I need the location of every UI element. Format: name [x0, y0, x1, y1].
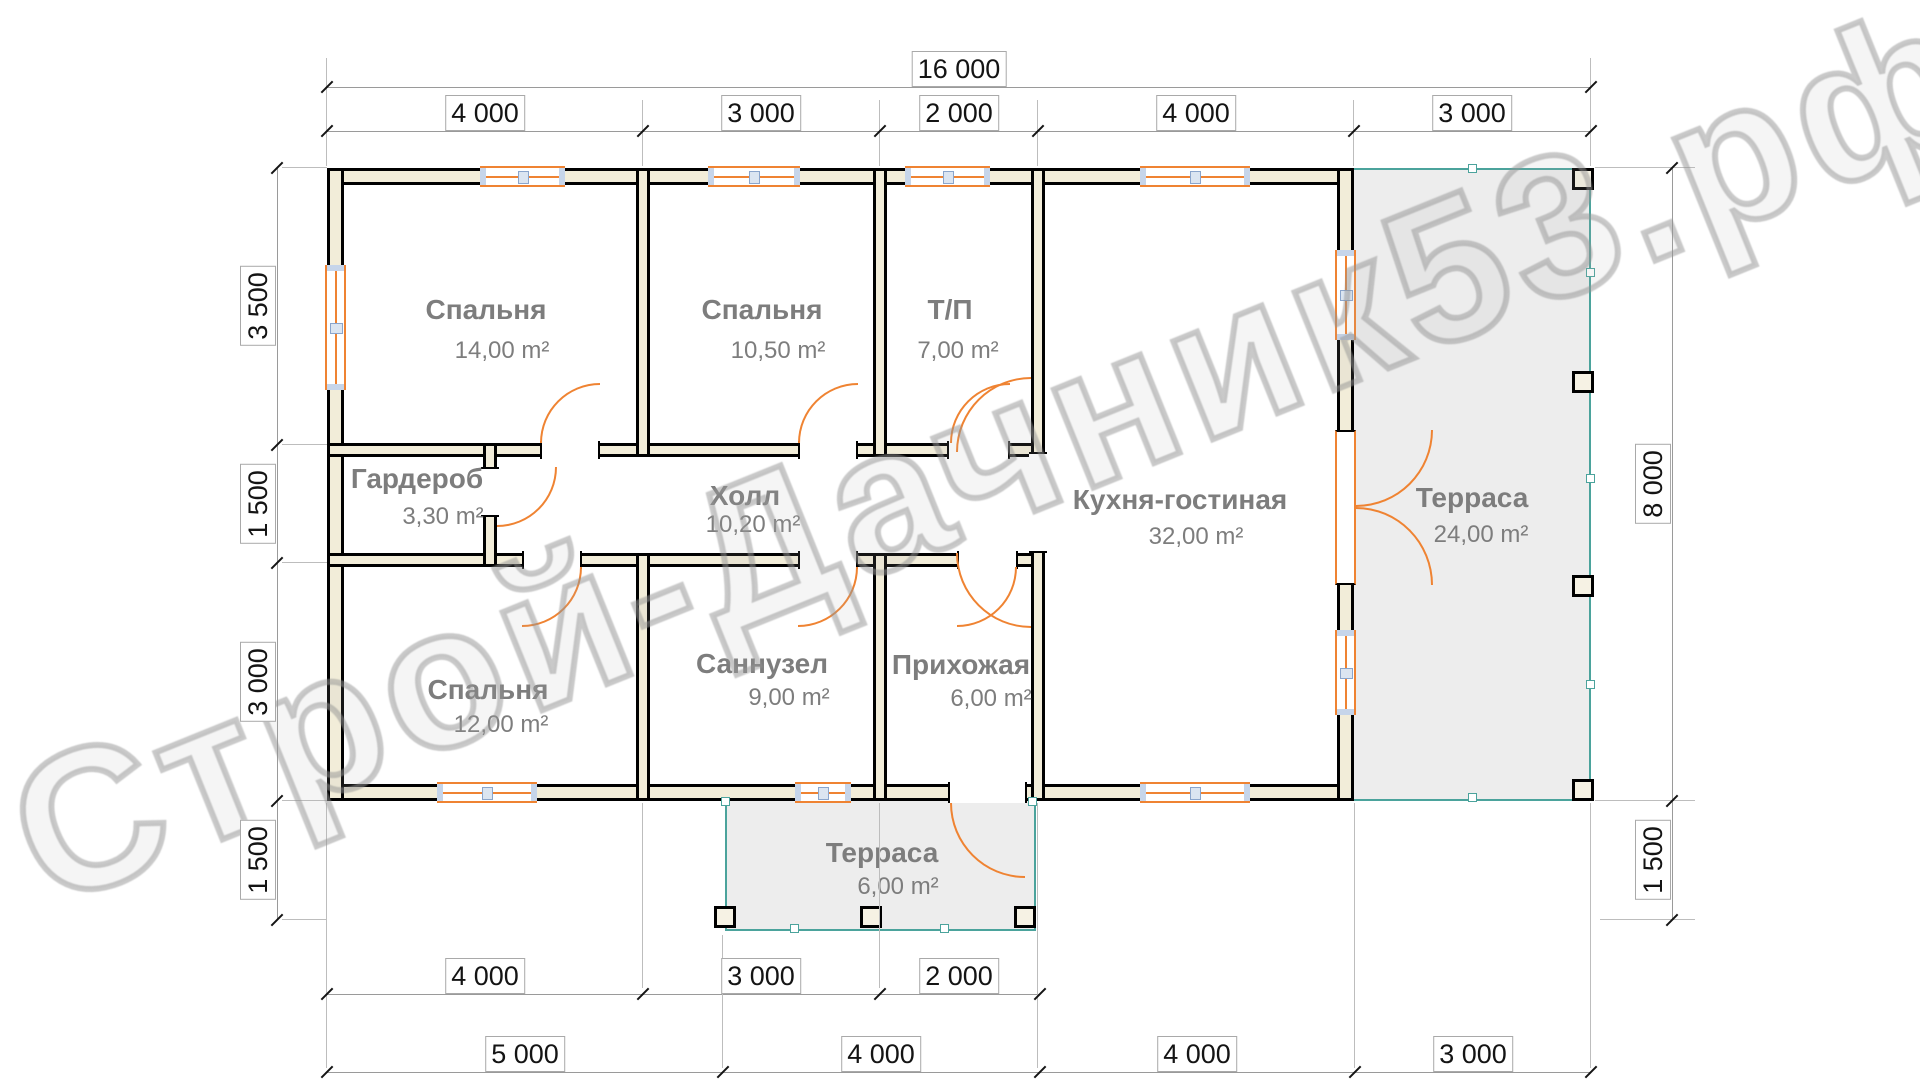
- dim-label-left: 3 000: [240, 642, 276, 722]
- door-opening-bedroom1: [540, 441, 600, 459]
- extension-line: [326, 58, 327, 166]
- door-arc-bathroom: [798, 567, 858, 627]
- dim-label-left: 3 500: [240, 266, 276, 346]
- dim-label-bottom: 3 000: [1433, 1036, 1513, 1072]
- room-label-bedroom1: Спальня: [426, 294, 547, 326]
- wall-exterior-left: [327, 168, 344, 801]
- dim-label-top: 2 000: [919, 95, 999, 131]
- wall-bathroom-entry: [873, 553, 887, 801]
- room-label-bedroom3: Спальня: [428, 674, 549, 706]
- dim-label-top: 4 000: [445, 95, 525, 131]
- room-area-tp: 7,00 m²: [917, 337, 998, 365]
- dim-label-top: 3 000: [721, 95, 801, 131]
- room-label-tp: Т/П: [927, 294, 972, 326]
- extension-line: [1600, 919, 1695, 920]
- extension-line: [282, 444, 327, 445]
- wall-bedroom1-bedroom2: [636, 168, 650, 457]
- room-label-wardrobe: Гардероб: [351, 463, 483, 495]
- terrace-post: [1572, 779, 1594, 801]
- window-kitchen-top: [1140, 166, 1250, 187]
- extension-line: [1354, 803, 1355, 1068]
- extension-line: [282, 919, 327, 920]
- terrace-edge-mark: [721, 797, 730, 806]
- dim-line-bottom-row2: [327, 1072, 1591, 1073]
- dim-label-left: 1 500: [240, 820, 276, 900]
- dim-line-top-total: [327, 87, 1591, 88]
- dim-label-bottom: 4 000: [445, 958, 525, 994]
- room-area-terrace-right: 24,00 m²: [1434, 521, 1529, 549]
- room-area-hall: 10,20 m²: [706, 511, 801, 539]
- door-arc-bedroom3: [522, 567, 582, 627]
- terrace-edge-mark: [1468, 164, 1477, 173]
- floor-plan-page: { "watermark": "Строй-Дачник53.рф", "dim…: [0, 0, 1920, 1080]
- room-area-bedroom3: 12,00 m²: [454, 711, 549, 739]
- room-area-bathroom: 9,00 m²: [748, 684, 829, 712]
- dim-label-bottom: 4 000: [1157, 1036, 1237, 1072]
- terrace-edge-mark: [1586, 680, 1595, 689]
- dim-line-bottom-row1: [327, 994, 1040, 995]
- terrace-edge-mark: [790, 924, 799, 933]
- door-opening-kitchen-double: [1029, 452, 1047, 553]
- door-opening-bedroom2: [798, 441, 858, 459]
- room-area-entry: 6,00 m²: [950, 685, 1031, 713]
- dim-label-bottom: 4 000: [841, 1036, 921, 1072]
- terrace-post: [714, 906, 736, 928]
- window-kitchen-right-lower: [1335, 630, 1356, 715]
- extension-line: [722, 935, 723, 1068]
- extension-line: [1590, 803, 1591, 1068]
- room-label-bedroom2: Спальня: [702, 294, 823, 326]
- wall-bedroom2-tp: [873, 168, 887, 457]
- room-label-hall: Холл: [710, 480, 780, 512]
- door-arc-bedroom1: [540, 383, 600, 443]
- extension-line: [1590, 58, 1591, 166]
- dim-label-right: 1 500: [1635, 820, 1671, 900]
- dim-label-top: 3 000: [1432, 95, 1512, 131]
- dim-label-right: 8 000: [1635, 444, 1671, 524]
- window-kitchen-right-upper: [1335, 250, 1356, 340]
- terrace-edge-mark: [1468, 793, 1477, 802]
- extension-line: [879, 803, 880, 988]
- room-area-wardrobe: 3,30 m²: [402, 503, 483, 531]
- room-label-kitchen: Кухня-гостиная: [1073, 484, 1288, 516]
- door-arc-kitchen-upper: [956, 377, 1031, 452]
- door-arc-wardrobe: [497, 467, 557, 527]
- window-kitchen-bottom: [1140, 782, 1250, 803]
- extension-line: [326, 803, 327, 1068]
- extension-line: [1037, 803, 1038, 1068]
- terrace-post: [1572, 371, 1594, 393]
- room-label-terrace-right: Терраса: [1416, 482, 1529, 514]
- dim-label-left: 1 500: [240, 464, 276, 544]
- room-label-terrace-bottom: Терраса: [826, 837, 939, 869]
- dim-label-top: 4 000: [1156, 95, 1236, 131]
- wall-hall-bottom: [327, 553, 1045, 567]
- door-opening-terrace-double: [1335, 430, 1356, 585]
- dim-label-bottom: 2 000: [919, 958, 999, 994]
- window-bathroom-bottom: [795, 782, 851, 803]
- dim-line-right: [1672, 168, 1673, 920]
- door-arc-bedroom2: [798, 383, 858, 443]
- extension-line: [642, 803, 643, 988]
- room-label-entry: Прихожая: [892, 649, 1030, 681]
- terrace-post: [1572, 168, 1594, 190]
- room-area-terrace-bottom: 6,00 m²: [857, 873, 938, 901]
- terrace-post: [1572, 575, 1594, 597]
- terrace-edge-mark: [1586, 268, 1595, 277]
- extension-line: [282, 167, 327, 168]
- terrace-edge-mark: [940, 924, 949, 933]
- wall-hall-top: [327, 443, 1045, 457]
- terrace-post: [1014, 906, 1036, 928]
- room-area-kitchen: 32,00 m²: [1149, 523, 1244, 551]
- dim-label-total-width: 16 000: [912, 51, 1007, 87]
- dim-label-bottom: 3 000: [721, 958, 801, 994]
- wall-bedroom3-bathroom: [636, 553, 650, 801]
- window-bedroom1-top: [480, 166, 565, 187]
- terrace-edge-mark: [1028, 797, 1037, 806]
- extension-line: [1595, 167, 1695, 168]
- window-bedroom3-bottom: [437, 782, 537, 803]
- room-label-bathroom: Саннузел: [696, 648, 828, 680]
- window-bedroom1-left: [325, 265, 346, 390]
- door-opening-entry-exterior: [948, 782, 1027, 803]
- window-tp-top: [905, 166, 990, 187]
- extension-line: [282, 800, 327, 801]
- window-bedroom2-top: [708, 166, 800, 187]
- dim-line-left: [277, 168, 278, 920]
- room-area-bedroom2: 10,50 m²: [731, 337, 826, 365]
- extension-line: [282, 562, 327, 563]
- dim-label-bottom: 5 000: [485, 1036, 565, 1072]
- room-area-bedroom1: 14,00 m²: [455, 337, 550, 365]
- terrace-edge-mark: [1586, 474, 1595, 483]
- extension-line: [1595, 800, 1695, 801]
- dim-line-top-segments: [327, 131, 1591, 132]
